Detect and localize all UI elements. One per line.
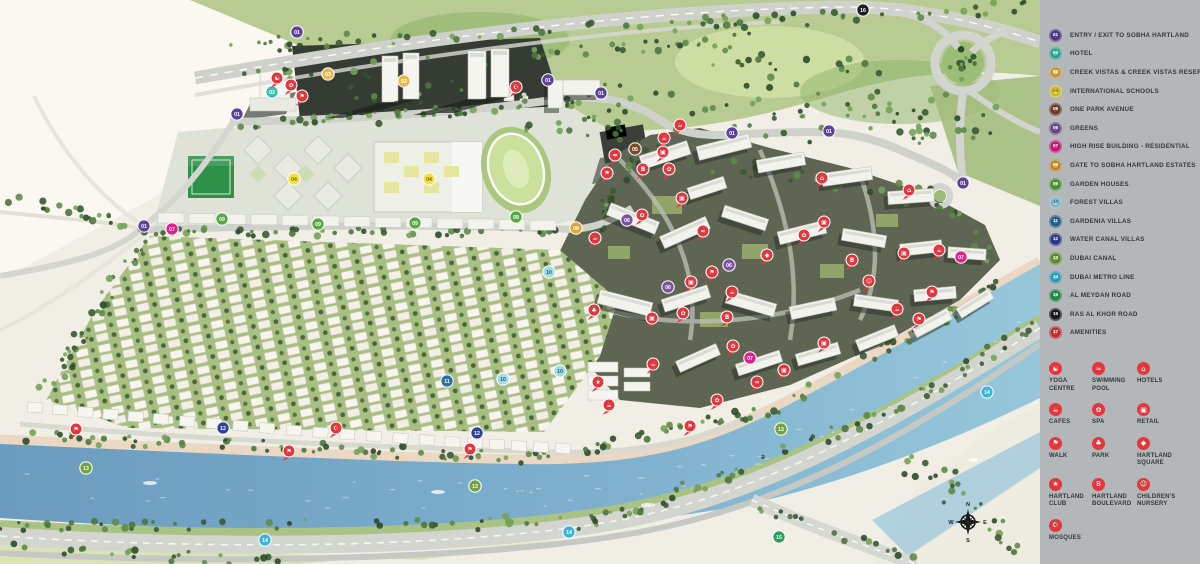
svg-text:☯: ☯ [274,75,279,82]
svg-text:≈: ≈ [754,379,759,386]
legend-item-14: 14DUBAI METRO LINE [1049,268,1194,287]
legend-item-17: 17AMENITIES [1049,324,1194,343]
legend-item-15: 15AL MEYDAN ROAD [1049,286,1194,305]
svg-text:⚑: ⚑ [73,426,78,433]
legend-marker-13-icon: 13 [1049,252,1062,265]
legend-item-13: 13DUBAI CANAL [1049,249,1194,268]
walk-icon: ⚑ [1049,437,1062,450]
legend-marker-09-icon: 09 [1049,178,1062,191]
svg-text:14: 14 [262,538,268,544]
club-icon: ★ [1049,478,1062,491]
amenity-legend-label: CHILDREN'S NURSERY [1137,494,1181,509]
amenity-legend-label: HOTELS [1137,378,1181,386]
svg-text:04: 04 [291,177,297,183]
svg-text:⌂: ⌂ [907,187,911,194]
amenity-legend-item-cafe: ☕CAFES [1049,403,1091,427]
legend-item-label: INTERNATIONAL SCHOOLS [1070,88,1159,95]
screenshot-root: 0101010101010101020303040405060606070707… [0,0,1200,564]
svg-text:03: 03 [401,79,407,85]
pool-icon: ≈ [1092,362,1105,375]
svg-text:07: 07 [169,227,175,233]
amenity-legend-item-mosque: ☪MOSQUES [1049,519,1091,543]
map-marker-01: 01 [823,125,835,137]
svg-text:⚑: ⚑ [299,93,304,100]
legend-marker-06-icon: 06 [1049,122,1062,135]
legend-marker-12-icon: 12 [1049,233,1062,246]
compass-west-label: W [948,520,954,526]
legend-marker-07-icon: 07 [1049,140,1062,153]
svg-text:☪: ☪ [333,425,338,432]
map-marker-15: 15 [773,531,785,543]
legend-marker-04-icon: 04 [1049,85,1062,98]
legend-item-label: GARDEN HOUSES [1070,181,1129,188]
svg-text:☕: ☕ [592,235,597,242]
svg-text:01: 01 [729,131,735,137]
cafe-icon: ☕ [1049,403,1062,416]
blvd-icon: B [1092,478,1105,491]
svg-text:✿: ✿ [639,212,644,219]
map-marker-10: 10 [554,365,566,377]
svg-text:07: 07 [958,255,964,261]
svg-text:01: 01 [545,78,551,84]
svg-text:★: ★ [595,379,600,386]
amenity-legend-label: WALK [1049,453,1091,461]
map-marker-10: 10 [497,373,509,385]
svg-text:✿: ✿ [801,232,806,239]
legend-marker-14-icon: 14 [1049,271,1062,284]
legend-item-12: 12WATER CANAL VILLAS [1049,231,1194,250]
amenity-legend-label: HARTLAND CLUB [1049,494,1091,509]
amenity-legend-label: SWIMMING POOL [1092,378,1136,393]
svg-text:▣: ▣ [688,279,694,286]
svg-text:B: B [725,314,730,321]
amenity-legend-label: RETAIL [1137,419,1181,427]
svg-text:✿: ✿ [730,343,735,350]
legend-item-label: DUBAI METRO LINE [1070,274,1135,281]
svg-text:14: 14 [984,390,990,396]
svg-text:13: 13 [778,427,784,433]
map-marker-11: 11 [441,375,453,387]
legend-item-label: AMENITIES [1070,329,1107,336]
legend-item-label: GATE TO SOBHA HARTLAND ESTATES [1070,162,1196,169]
svg-text:☕: ☕ [606,402,611,409]
svg-text:◆: ◆ [765,252,770,259]
map-marker-06: 06 [723,259,735,271]
map-marker-13: 13 [469,480,481,492]
svg-text:03: 03 [325,72,331,78]
svg-text:☕: ☕ [936,247,941,254]
master-plan-map: 0101010101010101020303040405060606070707… [0,0,1040,564]
svg-text:✿: ✿ [666,166,671,173]
amenity-legend-item-yoga: ☯YOGA CENTRE [1049,362,1091,393]
amenity-legend-label: YOGA CENTRE [1049,378,1091,393]
map-marker-01: 01 [231,108,243,120]
legend-marker-05-icon: 05 [1049,103,1062,116]
map-marker-09: 09 [216,213,228,225]
svg-text:⚑: ⚑ [709,269,714,276]
legend-item-label: WATER CANAL VILLAS [1070,236,1145,243]
legend-item-04: 04INTERNATIONAL SCHOOLS [1049,82,1194,101]
svg-text:▣: ▣ [679,195,685,202]
svg-text:05: 05 [632,147,638,153]
amenity-legend-label: HARTLAND SQUARE [1137,453,1181,468]
legend-list: 01ENTRY / EXIT TO SOBHA HARTLAND02HOTEL0… [1049,26,1194,342]
svg-text:01: 01 [598,91,604,97]
legend-item-06: 06GREENS [1049,119,1194,138]
legend-panel: 01ENTRY / EXIT TO SOBHA HARTLAND02HOTEL0… [1040,0,1200,564]
svg-text:01: 01 [826,129,832,135]
amenity-legend-item-blvd: BHARTLAND BOULEVARD [1092,478,1136,509]
map-marker-14: 14 [259,534,271,546]
map-marker-10: 10 [543,266,555,278]
svg-text:▣: ▣ [660,149,666,156]
amenity-legend: ☯YOGA CENTRE≈SWIMMING POOL⌂HOTELS☕CAFES✿… [1049,362,1194,542]
legend-marker-03-icon: 03 [1049,66,1062,79]
legend-item-05: 05ONE PARK AVENUE [1049,100,1194,119]
legend-marker-10-icon: 10 [1049,196,1062,209]
legend-item-label: DUBAI CANAL [1070,255,1116,262]
amenity-legend-item-park: ♣PARK [1092,437,1136,468]
map-marker-06: 06 [662,281,674,293]
map-marker-04: 04 [423,173,435,185]
svg-text:04: 04 [426,177,432,183]
legend-item-label: FOREST VILLAS [1070,199,1123,206]
svg-text:11: 11 [444,379,450,385]
svg-text:☪: ☪ [513,84,518,91]
svg-text:06: 06 [665,285,671,291]
map-marker-08: 08 [570,222,582,234]
map-marker-01: 01 [542,74,554,86]
map-marker-06: 06 [621,214,633,226]
map-marker-12: 12 [471,427,483,439]
legend-item-11: 11GARDENIA VILLAS [1049,212,1194,231]
legend-item-label: CREEK VISTAS & CREEK VISTAS RESERVÉ [1070,69,1200,76]
svg-text:13: 13 [83,466,89,472]
svg-text:▣: ▣ [821,219,827,226]
map-marker-13: 13 [775,423,787,435]
svg-text:10: 10 [546,270,552,276]
legend-item-label: HIGH RISE BUILDING - RESIDENTIAL [1070,143,1190,150]
svg-text:▣: ▣ [901,250,907,257]
svg-text:⌂: ⌂ [820,175,824,182]
svg-text:⚑: ⚑ [929,289,934,296]
map-marker-01: 01 [595,87,607,99]
svg-text:01: 01 [141,224,147,230]
legend-item-label: RAS AL KHOR ROAD [1070,311,1138,318]
svg-text:06: 06 [726,263,732,269]
svg-text:13: 13 [472,484,478,490]
svg-text:08: 08 [573,226,579,232]
svg-text:B: B [850,257,855,264]
amenity-legend-label: HARTLAND BOULEVARD [1092,494,1136,509]
svg-text:☕: ☕ [677,122,682,129]
amenity-legend-item-nursery: ☺CHILDREN'S NURSERY [1137,478,1185,509]
legend-item-label: ONE PARK AVENUE [1070,106,1134,113]
svg-text:≈: ≈ [700,228,705,235]
svg-text:✿: ✿ [680,310,685,317]
map-marker-12: 12 [217,422,229,434]
svg-text:⚑: ⚑ [467,446,472,453]
svg-text:16: 16 [860,8,866,14]
amenity-legend-label: CAFES [1049,419,1091,427]
svg-text:12: 12 [220,426,226,432]
svg-text:09: 09 [412,221,418,227]
map-marker-07: 07 [744,352,756,364]
map-marker-07: 07 [166,223,178,235]
legend-item-08: 08GATE TO SOBHA HARTLAND ESTATES [1049,156,1194,175]
legend-item-label: GREENS [1070,125,1098,132]
svg-text:▣: ▣ [821,340,827,347]
park-icon: ♣ [1092,437,1105,450]
map-marker-09: 09 [409,217,421,229]
retail-icon: ▣ [1137,403,1150,416]
legend-item-07: 07HIGH RISE BUILDING - RESIDENTIAL [1049,138,1194,157]
svg-text:⚑: ⚑ [687,423,692,430]
map-marker-07: 07 [955,251,967,263]
legend-item-01: 01ENTRY / EXIT TO SOBHA HARTLAND [1049,26,1194,45]
legend-marker-16-icon: 16 [1049,308,1062,321]
amenity-legend-label: MOSQUES [1049,535,1091,543]
svg-text:✿: ✿ [714,397,719,404]
svg-text:☕: ☕ [650,361,655,368]
legend-item-label: GARDENIA VILLAS [1070,218,1131,225]
spa-icon: ✿ [1092,403,1105,416]
svg-text:▣: ▣ [781,367,787,374]
svg-text:01: 01 [294,30,300,36]
amenity-legend-item-club: ★HARTLAND CLUB [1049,478,1091,509]
legend-item-10: 10FOREST VILLAS [1049,193,1194,212]
legend-item-16: 16RAS AL KHOR ROAD [1049,305,1194,324]
map-marker-13: 13 [80,462,92,474]
legend-marker-11-icon: 11 [1049,215,1062,228]
svg-text:02: 02 [269,90,275,96]
legend-item-03: 03CREEK VISTAS & CREEK VISTAS RESERVÉ [1049,63,1194,82]
map-marker-01: 01 [291,26,303,38]
svg-text:12: 12 [474,431,480,437]
svg-text:⚑: ⚑ [916,316,921,323]
map-marker-01: 01 [726,127,738,139]
yoga-icon: ☯ [1049,362,1062,375]
map-marker-04: 04 [288,173,300,185]
amenity-legend-item-walk: ⚑WALK [1049,437,1091,468]
legend-item-09: 09GARDEN HOUSES [1049,175,1194,194]
svg-text:07: 07 [747,356,753,362]
legend-marker-01-icon: 01 [1049,29,1062,42]
map-marker-02: 02 [266,86,278,98]
svg-text:⚑: ⚑ [604,170,609,177]
amenity-legend-label: SPA [1092,419,1136,427]
svg-text:▣: ▣ [649,315,655,322]
map-marker-09: 09 [312,218,324,230]
svg-text:10: 10 [500,377,506,383]
svg-text:⚑: ⚑ [286,448,291,455]
legend-marker-17-icon: 17 [1049,326,1062,339]
svg-text:09: 09 [315,222,321,228]
svg-text:09: 09 [513,215,519,221]
svg-text:☕: ☕ [894,306,899,313]
legend-item-label: ENTRY / EXIT TO SOBHA HARTLAND [1070,32,1189,39]
svg-text:01: 01 [234,112,240,118]
svg-text:15: 15 [776,535,782,541]
hotel-icon: ⌂ [1137,362,1150,375]
map-marker-01: 01 [138,220,150,232]
svg-text:≈: ≈ [612,152,617,159]
amenity-legend-item-square: ◆HARTLAND SQUARE [1137,437,1185,468]
amenity-legend-label: PARK [1092,453,1136,461]
map-marker-09: 09 [510,211,522,223]
amenity-legend-item-retail: ▣RETAIL [1137,403,1185,427]
map-marker-03: 03 [398,75,410,87]
legend-marker-08-icon: 08 [1049,159,1062,172]
compass-south-label: S [966,538,970,544]
map-marker-14: 14 [563,526,575,538]
svg-text:01: 01 [960,181,966,187]
map-marker-03: 03 [322,68,334,80]
svg-text:B: B [641,166,646,173]
nursery-icon: ☺ [1137,478,1150,491]
svg-text:06: 06 [624,218,630,224]
map-marker-01: 01 [957,177,969,189]
amenity-legend-item-spa: ✿SPA [1092,403,1136,427]
svg-text:♣: ♣ [591,307,596,314]
svg-text:10: 10 [557,369,563,375]
map-marker-16: 16 [857,4,869,16]
legend-item-label: HOTEL [1070,50,1093,57]
svg-text:14: 14 [566,530,572,536]
amenity-legend-item-pool: ≈SWIMMING POOL [1092,362,1136,393]
svg-text:☕: ☕ [661,135,666,142]
svg-text:✿: ✿ [288,82,293,89]
amenity-legend-item-hotel: ⌂HOTELS [1137,362,1185,393]
legend-marker-02-icon: 02 [1049,47,1062,60]
svg-text:☺: ☺ [866,278,872,285]
compass-east-label: E [983,520,987,526]
svg-text:09: 09 [219,217,225,223]
mosque-icon: ☪ [1049,519,1062,532]
map-marker-14: 14 [981,386,993,398]
map-marker-05: 05 [629,143,641,155]
compass-north-label: N [966,502,970,508]
square-icon: ◆ [1137,437,1150,450]
legend-marker-15-icon: 15 [1049,289,1062,302]
legend-item-02: 02HOTEL [1049,45,1194,64]
legend-item-label: AL MEYDAN ROAD [1070,292,1131,299]
svg-text:☕: ☕ [729,289,734,296]
